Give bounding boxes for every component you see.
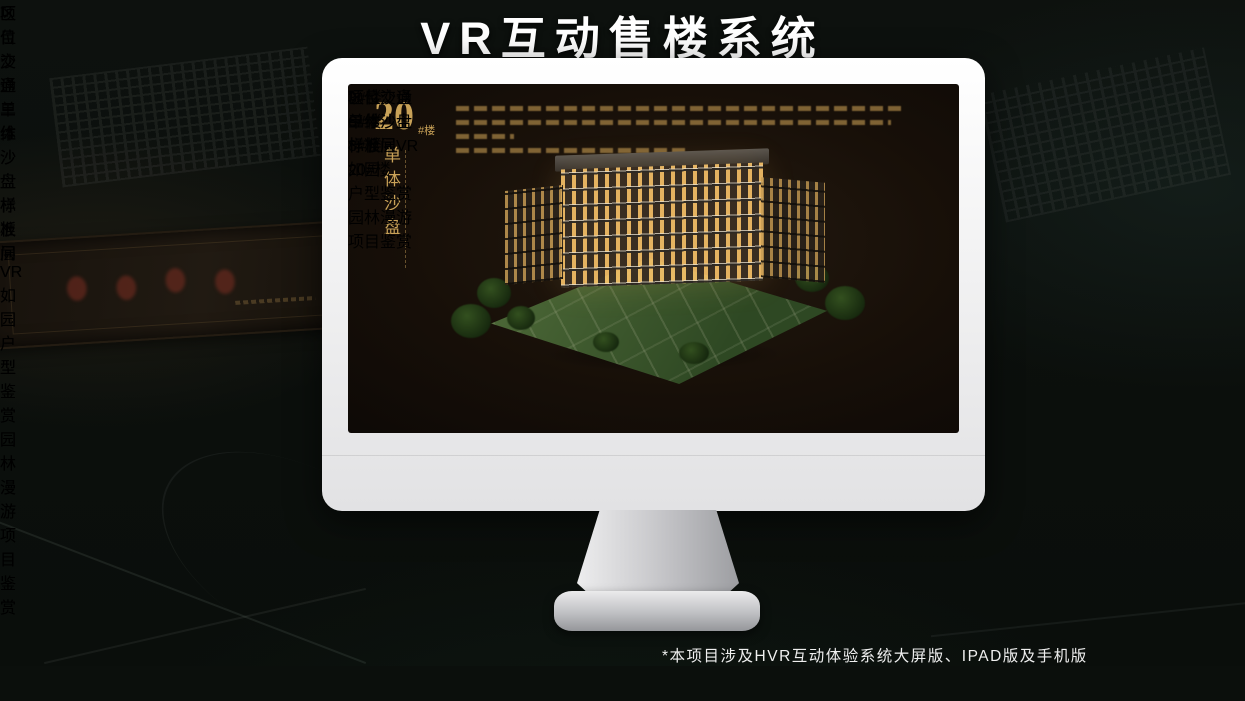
blossom-tree <box>773 286 797 306</box>
nav-item-showroom-vr[interactable]: 样板间VR <box>0 192 22 282</box>
nav-item-location[interactable]: 区位交通 <box>0 0 22 96</box>
building-number-unit: #楼 <box>418 122 435 138</box>
project-logo: 如园 <box>348 156 418 180</box>
nav-item-floorplans[interactable]: 户型鉴赏 <box>348 180 418 204</box>
monitor-screen: 20 #楼 单体沙盘 <box>348 84 959 433</box>
monitor-stand-neck <box>577 510 739 595</box>
main-navigation: 区位交通 三维沙盘 样板间VR 如园 户型鉴赏 园林漫游 项目鉴赏 <box>0 0 22 618</box>
building-facade <box>561 162 763 287</box>
building-wing-left <box>505 185 563 285</box>
nav-item-3d-sandbox[interactable]: 三维沙盘 <box>0 96 22 192</box>
footnote: *本项目涉及HVR互动体验系统大屏版、IPAD版及手机版 <box>662 644 1088 666</box>
blossom-tree <box>531 286 553 306</box>
building-render-scene <box>443 136 873 398</box>
nav-item-3d-sandbox[interactable]: 三维沙盘 <box>348 108 418 132</box>
monitor-seam <box>322 455 985 456</box>
bush <box>679 342 709 364</box>
tree <box>451 304 491 338</box>
tree <box>507 306 535 330</box>
nav-item-floorplans[interactable]: 户型鉴赏 <box>0 330 22 426</box>
bush <box>593 332 619 352</box>
building-wing-right <box>761 177 825 283</box>
nav-item-project-view[interactable]: 项目鉴赏 <box>348 228 418 252</box>
nav-item-garden-roam[interactable]: 园林漫游 <box>0 426 22 522</box>
tree <box>825 286 865 320</box>
blossom-tree <box>563 324 581 338</box>
nav-item-showroom-vr[interactable]: 样板间VR <box>348 132 418 156</box>
monitor-device: 20 #楼 单体沙盘 <box>322 58 985 511</box>
nav-item-garden-roam[interactable]: 园林漫游 <box>348 204 418 228</box>
main-navigation: 区位交通 三维沙盘 样板间VR 如园 户型鉴赏 园林漫游 项目鉴赏 <box>348 84 418 252</box>
project-logo: 如园 <box>0 282 22 330</box>
nav-item-project-view[interactable]: 项目鉴赏 <box>0 522 22 618</box>
nav-item-location[interactable]: 区位交通 <box>348 84 418 108</box>
monitor-stand-base <box>554 591 760 631</box>
